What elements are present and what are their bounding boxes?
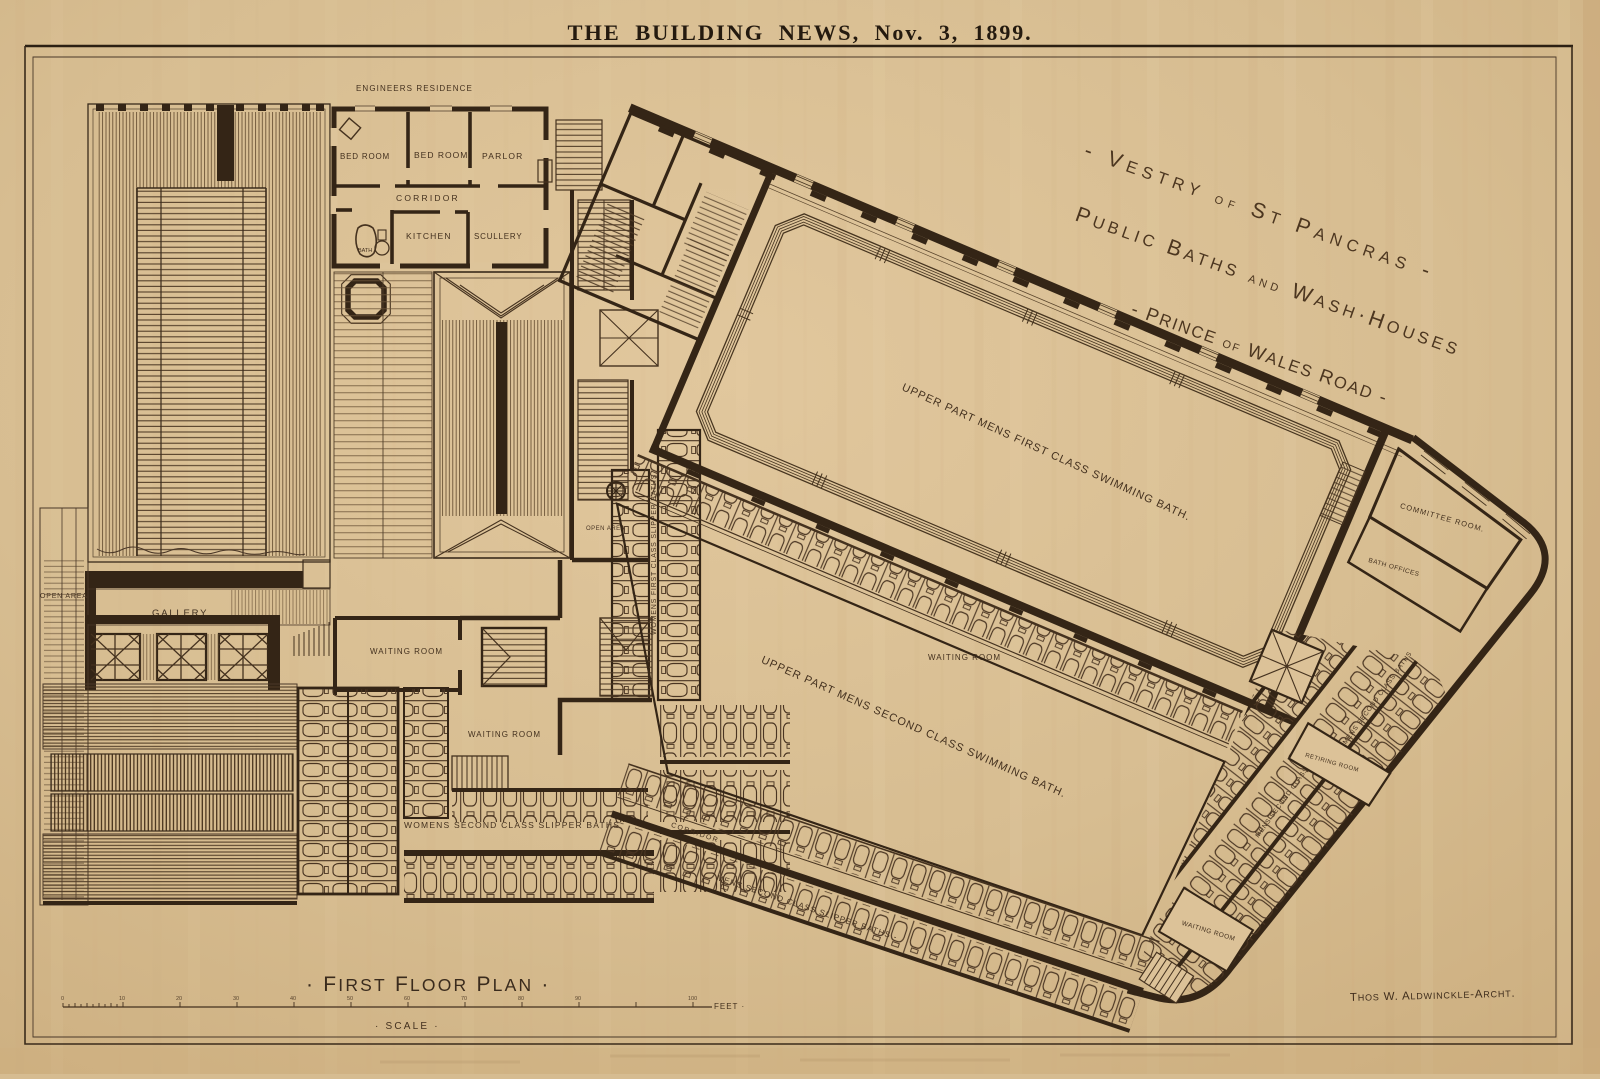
svg-text:100: 100 [688, 996, 697, 1002]
svg-text:BED ROOM: BED ROOM [340, 152, 390, 161]
svg-text:80: 80 [518, 996, 524, 1002]
svg-text:WOMENS SECOND CLASS SLIPPER BA: WOMENS SECOND CLASS SLIPPER BATHS [404, 820, 620, 830]
svg-text:THE BUILDING NEWS, Nov. 3, 189: THE BUILDING NEWS, Nov. 3, 1899. [567, 20, 1032, 45]
svg-text:30: 30 [233, 996, 239, 1002]
svg-text:ENGINEERS RESIDENCE: ENGINEERS RESIDENCE [356, 84, 473, 93]
svg-text:SCULLERY: SCULLERY [474, 232, 523, 241]
svg-text:CORRIDOR: CORRIDOR [396, 193, 460, 203]
svg-text:FEET ·: FEET · [714, 1002, 745, 1011]
svg-text:90: 90 [575, 996, 581, 1002]
svg-text:· FIRST FLOOR PLAN ·: · FIRST FLOOR PLAN · [306, 973, 551, 996]
svg-text:0: 0 [61, 996, 64, 1002]
svg-text:WAITING ROOM: WAITING ROOM [468, 730, 541, 739]
svg-text:KITCHEN: KITCHEN [406, 231, 452, 241]
svg-text:· SCALE ·: · SCALE · [375, 1021, 440, 1032]
svg-text:WAITING ROOM: WAITING ROOM [370, 647, 443, 656]
svg-text:BATH: BATH [358, 248, 372, 254]
svg-text:BED ROOM: BED ROOM [414, 150, 468, 160]
svg-text:70: 70 [461, 996, 467, 1002]
svg-text:50: 50 [347, 996, 353, 1002]
svg-text:20: 20 [176, 996, 182, 1002]
svg-text:40: 40 [290, 996, 296, 1002]
svg-text:WAITING ROOM: WAITING ROOM [928, 653, 1001, 662]
svg-text:PARLOR: PARLOR [482, 151, 524, 161]
svg-text:60: 60 [404, 996, 410, 1002]
svg-text:10: 10 [119, 996, 125, 1002]
